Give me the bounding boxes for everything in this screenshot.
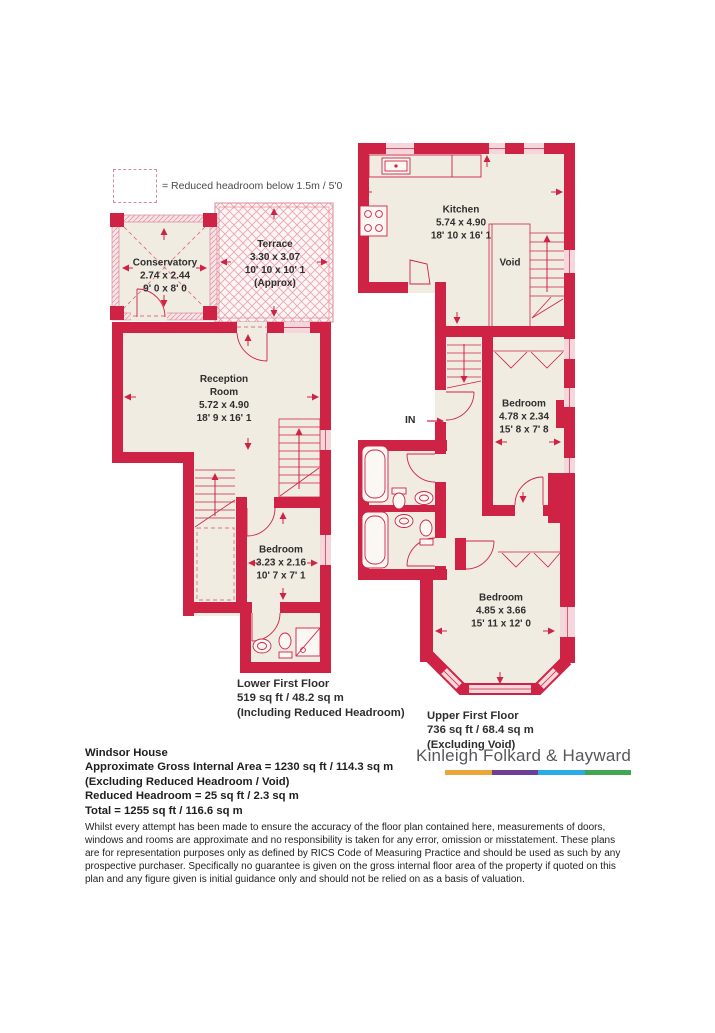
door-leaf — [410, 260, 430, 284]
entrance-label: IN — [405, 414, 416, 426]
stripe-purple — [492, 770, 539, 775]
shower-icon — [296, 628, 320, 656]
lower-floor-label: Lower First Floor 519 sq ft / 48.2 sq m … — [237, 677, 405, 720]
disclaimer-text: Whilst every attempt has been made to en… — [85, 821, 630, 886]
room-label-void: Void — [500, 257, 521, 270]
toilet-icon — [279, 633, 292, 658]
brand-block: Kinleigh Folkard & Hayward — [416, 746, 631, 775]
reduced-headroom-line: Reduced Headroom = 25 sq ft / 2.3 sq m — [85, 789, 633, 803]
room-label-bedroom-mid: Bedroom 4.78 x 2.34 15' 8 x 7' 8 — [499, 398, 549, 437]
room-label-reception: Reception Room 5.72 x 4.90 18' 9 x 16' 1 — [185, 373, 263, 425]
stripe-blue — [538, 770, 585, 775]
bathtub-icon — [362, 446, 388, 502]
total-area-line: Total = 1255 sq ft / 116.6 sq m — [85, 804, 633, 818]
brand-name: Kinleigh Folkard & Hayward — [416, 746, 631, 766]
room-label-kitchen: Kitchen 5.74 x 4.90 18' 10 x 16' 1 — [431, 204, 491, 243]
toilet-icon — [392, 488, 406, 509]
room-label-terrace: Terrace 3.30 x 3.07 10' 10 x 10' 1 (Appr… — [245, 238, 305, 290]
sink-icon — [253, 639, 271, 653]
brand-stripe — [445, 770, 631, 775]
room-label-conservatory: Conservatory 2.74 x 2.44 9' 0 x 8' 0 — [133, 257, 197, 296]
room-label-bedroom-lower: Bedroom 3.23 x 2.16 10' 7 x 7' 1 — [256, 544, 306, 583]
toilet-icon — [420, 520, 433, 545]
stripe-green — [585, 770, 632, 775]
floorplan-page: = Reduced headroom below 1.5m / 5'0 — [0, 0, 715, 1033]
sink-icon — [395, 515, 413, 528]
bathtub-icon — [362, 512, 388, 568]
kitchen-sink-icon — [382, 158, 410, 174]
room-label-bedroom-front: Bedroom 4.85 x 3.66 15' 11 x 12' 0 — [471, 592, 531, 631]
hob-icon — [360, 206, 387, 236]
sink-icon — [415, 492, 433, 505]
stripe-amber — [445, 770, 492, 775]
excluding-line: (Excluding Reduced Headroom / Void) — [85, 775, 633, 789]
